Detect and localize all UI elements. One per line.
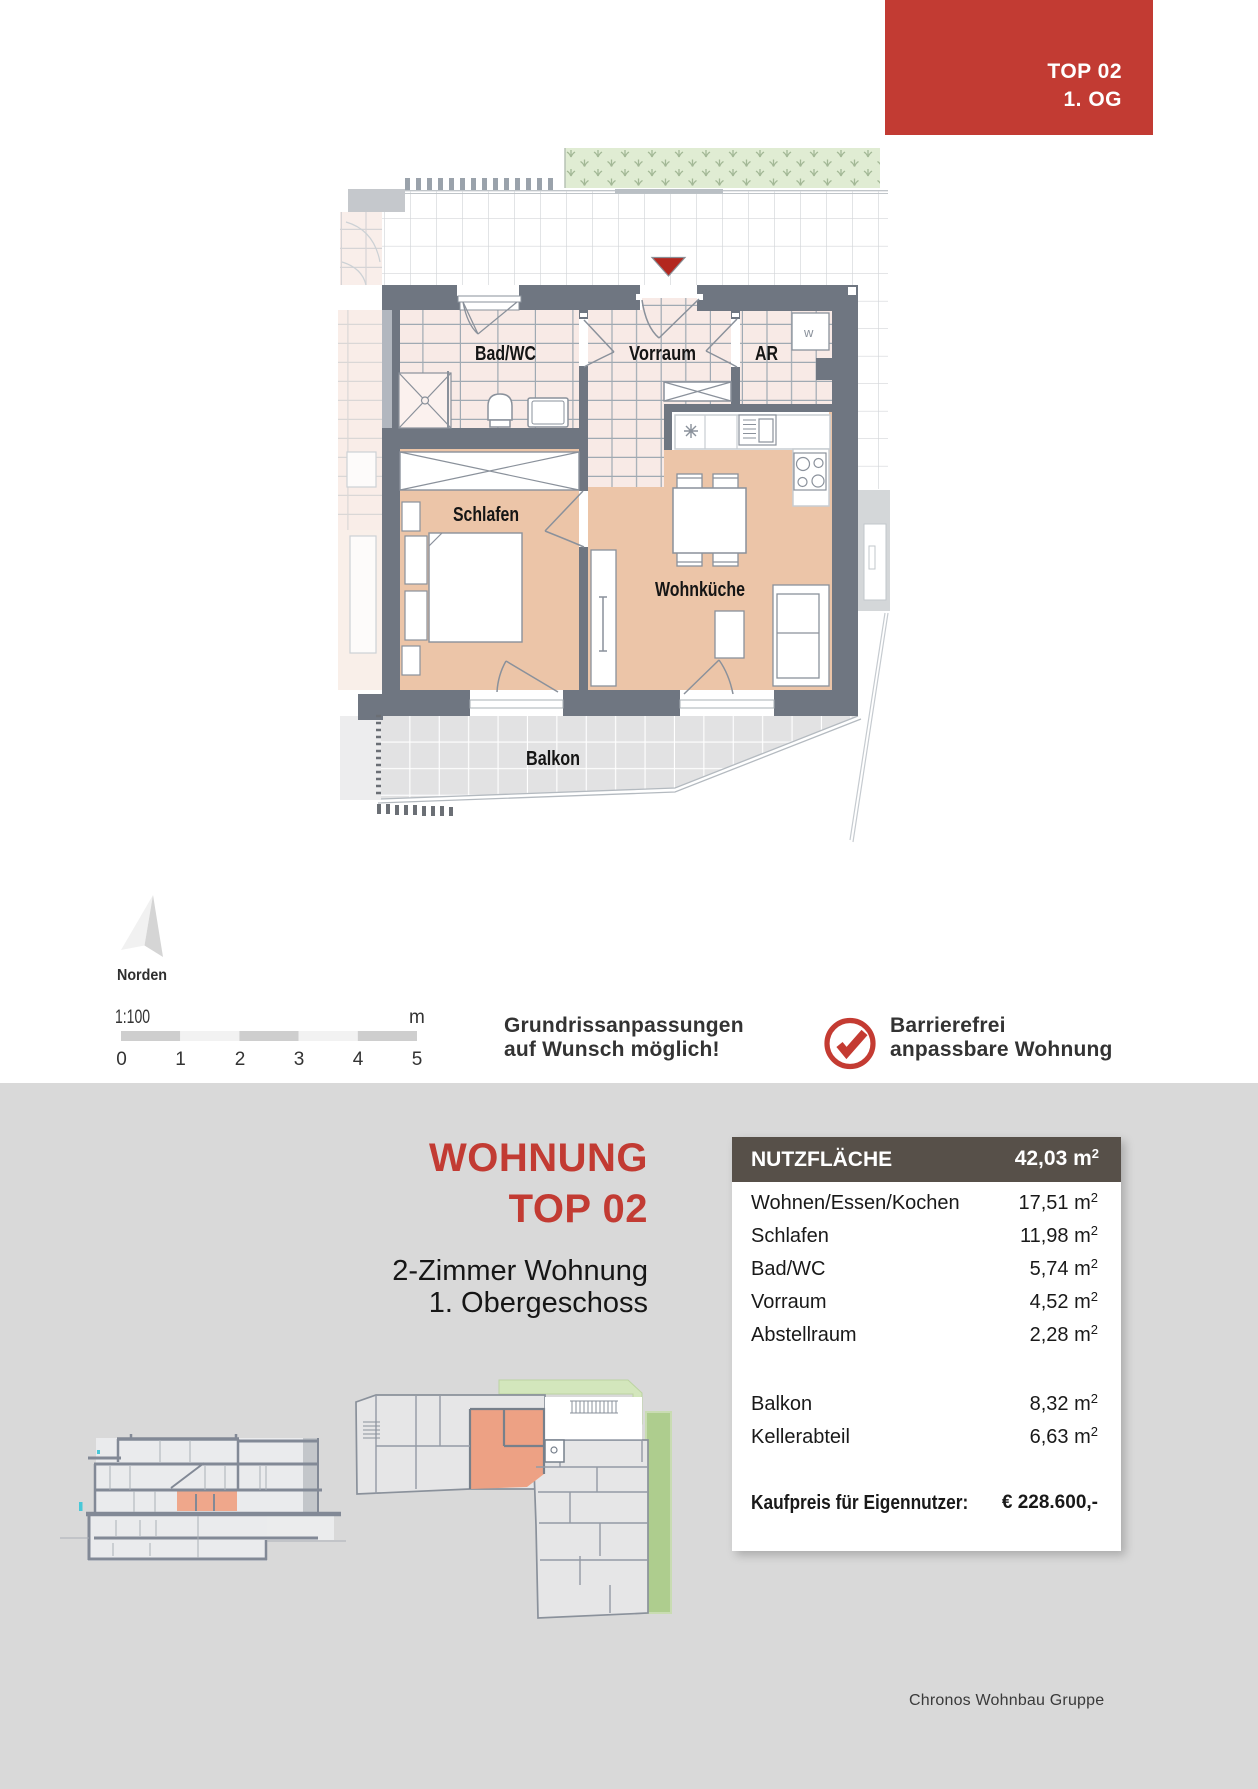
- svg-text:Bad/WC: Bad/WC: [475, 343, 536, 365]
- svg-text:Norden: Norden: [117, 967, 167, 984]
- svg-text:0: 0: [116, 1049, 127, 1070]
- svg-text:Balkon: Balkon: [526, 748, 580, 770]
- svg-text:5: 5: [412, 1049, 423, 1070]
- svg-text:4: 4: [353, 1049, 364, 1070]
- svg-text:w: w: [803, 325, 814, 340]
- svg-text:1:100: 1:100: [115, 1007, 150, 1028]
- svg-text:Vorraum: Vorraum: [629, 343, 696, 365]
- svg-text:Wohnküche: Wohnküche: [655, 579, 745, 601]
- svg-text:1: 1: [175, 1049, 186, 1070]
- svg-text:AR: AR: [755, 343, 778, 365]
- svg-text:3: 3: [294, 1049, 305, 1070]
- svg-text:2: 2: [235, 1049, 246, 1070]
- svg-text:Schlafen: Schlafen: [453, 504, 519, 526]
- svg-text:m: m: [409, 1007, 425, 1028]
